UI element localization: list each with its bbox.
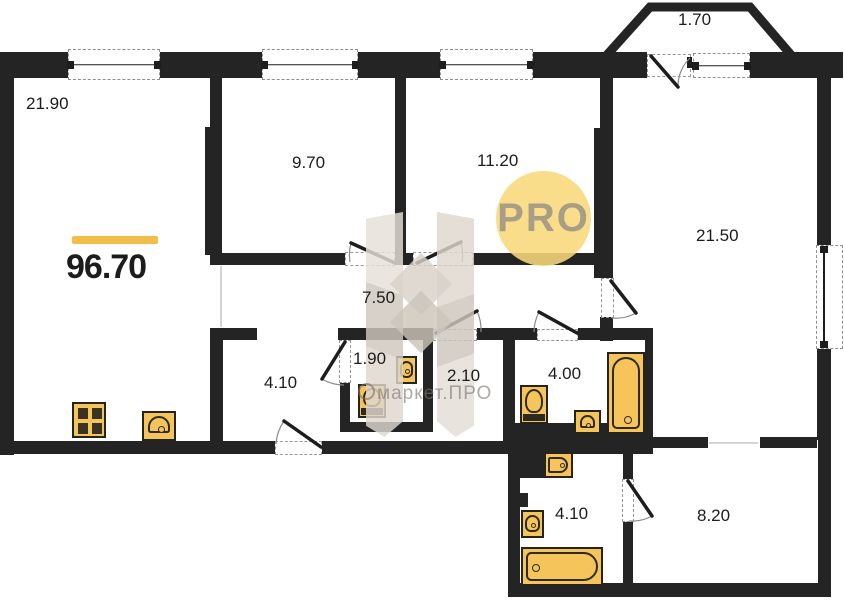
bathtub-icon [607, 352, 645, 434]
wall [750, 52, 843, 78]
wall [210, 253, 345, 265]
total-area-block: 96.70 [66, 236, 158, 287]
wall [322, 441, 653, 454]
wall [0, 441, 275, 454]
wall [477, 328, 503, 340]
pro-logo-text: PRO [497, 196, 590, 241]
room-area-label-bathroom: 4.00 [548, 364, 581, 384]
room-area-label-balcony: 1.70 [678, 10, 711, 30]
wall [594, 128, 601, 278]
room-area-label-entrance-hall: 4.10 [264, 373, 297, 393]
watermark-text: маркет.ПРО [358, 383, 492, 405]
room-area-label-corridor: 7.50 [362, 288, 395, 308]
wall [818, 440, 831, 597]
pro-logo-badge: PRO [496, 171, 591, 266]
room-area-label-living-2: 21.50 [696, 226, 739, 246]
window [440, 49, 533, 80]
door-opening [622, 479, 634, 522]
wall [519, 452, 546, 478]
total-area-value: 96.70 [66, 248, 158, 287]
wall [503, 340, 515, 441]
entrance-door-opening [275, 441, 322, 455]
door-opening [339, 340, 351, 383]
kitchen-sink-icon [142, 411, 176, 441]
wall [817, 78, 831, 247]
watermark-ring-icon [358, 383, 375, 400]
room-area-label-bathroom-2: 4.10 [555, 504, 588, 524]
wall [160, 52, 262, 78]
balcony-door-opening [647, 54, 691, 77]
door-opening [601, 278, 614, 318]
wall [623, 522, 633, 584]
wall [0, 52, 14, 455]
washing-machine-icon [544, 452, 573, 478]
wall [578, 328, 653, 340]
window [262, 49, 358, 80]
wall [210, 328, 257, 340]
wall [503, 328, 537, 340]
wall [358, 52, 440, 78]
room-area-label-storage: 2.10 [447, 366, 480, 386]
stove-icon [72, 402, 106, 438]
door-frame-tick [687, 57, 692, 68]
wall [210, 328, 223, 441]
wall [520, 493, 528, 507]
accent-underline [72, 236, 158, 244]
room-area-label-hallway-2: 8.20 [697, 506, 730, 526]
room-area-label-living: 21.90 [26, 94, 69, 114]
wall [533, 52, 647, 78]
wall [600, 78, 613, 278]
toilet-icon [520, 385, 548, 424]
balcony-window [693, 53, 750, 78]
window [68, 49, 160, 80]
wall [205, 127, 211, 255]
bathtub-icon [521, 547, 603, 586]
wall [653, 437, 708, 448]
door-opening [537, 329, 578, 341]
wall [760, 437, 817, 448]
room-area-label-bedroom-1: 9.70 [292, 153, 325, 173]
room-area-label-bedroom-2: 11.20 [477, 151, 518, 171]
window [816, 245, 843, 349]
sink-icon [521, 510, 544, 538]
wall [210, 78, 222, 255]
wall [623, 447, 633, 479]
sink-icon [574, 410, 601, 434]
floor-plan: маркет.ПРО 21.90 9.70 11.20 1.70 21.50 7… [0, 0, 844, 600]
room-area-label-wc: 1.90 [353, 349, 386, 369]
wall [817, 347, 831, 440]
